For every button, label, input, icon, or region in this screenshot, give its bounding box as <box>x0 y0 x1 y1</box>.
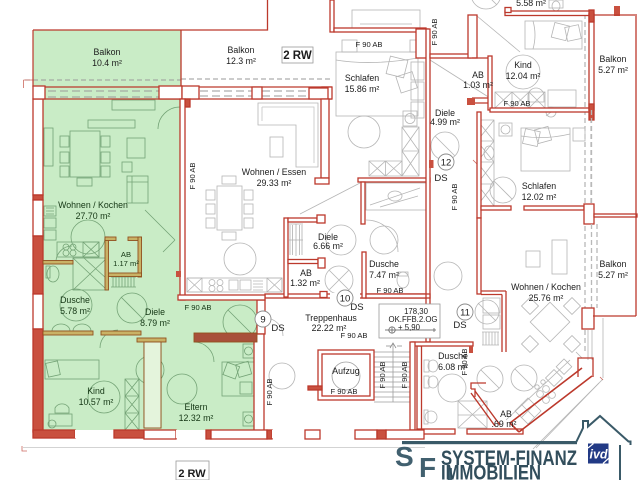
svg-text:F 90 AB: F 90 AB <box>184 303 211 312</box>
svg-text:+ 5,90: + 5,90 <box>398 323 421 332</box>
svg-text:DS: DS <box>453 320 466 331</box>
svg-text:11: 11 <box>460 308 470 319</box>
svg-text:5.27 m²: 5.27 m² <box>598 270 628 280</box>
svg-text:12.02 m²: 12.02 m² <box>522 192 557 202</box>
svg-text:ivd: ivd <box>589 448 607 462</box>
svg-text:F 90 AB: F 90 AB <box>430 18 439 45</box>
svg-text:5.78 m²: 5.78 m² <box>60 306 90 316</box>
svg-text:F 90 AB: F 90 AB <box>188 162 197 189</box>
svg-text:8.79 m²: 8.79 m² <box>140 318 170 328</box>
svg-text:F 90 AB: F 90 AB <box>265 378 274 405</box>
svg-text:DS: DS <box>271 323 284 334</box>
svg-text:2 RW: 2 RW <box>178 468 206 480</box>
svg-text:Aufzug: Aufzug <box>332 366 359 376</box>
svg-text:F 90 AB: F 90 AB <box>503 99 530 108</box>
svg-text:Diele: Diele <box>145 307 165 317</box>
svg-text:1.03 m²: 1.03 m² <box>463 80 493 90</box>
svg-text:Balkon: Balkon <box>600 54 627 64</box>
svg-text:10.4 m²: 10.4 m² <box>92 58 122 68</box>
svg-text:10: 10 <box>340 294 351 305</box>
svg-text:Eltern: Eltern <box>185 402 208 412</box>
svg-text:Balkon: Balkon <box>600 259 627 269</box>
svg-text:1.17 m²: 1.17 m² <box>113 259 139 268</box>
svg-text:Schlafen: Schlafen <box>522 181 556 191</box>
svg-text:AB: AB <box>300 268 312 278</box>
svg-text:25.76 m²: 25.76 m² <box>529 293 564 303</box>
svg-text:Wohnen / Essen: Wohnen / Essen <box>242 167 306 177</box>
svg-text:F: F <box>419 452 436 480</box>
svg-text:9: 9 <box>260 315 265 326</box>
svg-text:4.99 m²: 4.99 m² <box>430 117 460 127</box>
svg-text:12.04 m²: 12.04 m² <box>506 71 541 81</box>
svg-text:F 90 AB: F 90 AB <box>340 331 367 340</box>
svg-text:Kind: Kind <box>514 60 532 70</box>
svg-text:DS: DS <box>350 302 363 313</box>
svg-text:DS: DS <box>434 173 447 184</box>
svg-text:F 90 AB: F 90 AB <box>330 387 357 396</box>
svg-text:.69 m²: .69 m² <box>492 419 517 429</box>
svg-text:AB: AB <box>121 250 131 259</box>
svg-text:1.32 m²: 1.32 m² <box>290 278 320 288</box>
svg-text:5.27 m²: 5.27 m² <box>598 65 628 75</box>
svg-text:AB: AB <box>500 409 512 419</box>
svg-text:Balkon: Balkon <box>94 47 121 57</box>
svg-text:2 RW: 2 RW <box>283 50 312 62</box>
svg-text:Wohnen / Kochen: Wohnen / Kochen <box>511 282 581 292</box>
svg-text:F 90 AB: F 90 AB <box>378 361 387 388</box>
svg-text:AB: AB <box>472 70 484 80</box>
svg-text:7.47 m²: 7.47 m² <box>369 270 399 280</box>
svg-text:27.70 m²: 27.70 m² <box>76 211 111 221</box>
svg-text:IMMOBILIEN: IMMOBILIEN <box>441 462 541 480</box>
svg-text:6.66 m²: 6.66 m² <box>313 241 343 251</box>
svg-text:Balkon: Balkon <box>228 45 255 55</box>
svg-text:Kind: Kind <box>87 386 105 396</box>
svg-text:15.86 m²: 15.86 m² <box>345 84 380 94</box>
svg-text:10.57 m²: 10.57 m² <box>79 397 114 407</box>
svg-text:F 90 AB: F 90 AB <box>400 361 409 388</box>
svg-text:F 90 AB: F 90 AB <box>460 348 469 375</box>
svg-text:5.58 m²: 5.58 m² <box>516 0 546 8</box>
svg-text:Wohnen / Kochen: Wohnen / Kochen <box>58 200 128 210</box>
svg-text:29.33 m²: 29.33 m² <box>257 178 292 188</box>
svg-text:12.32 m²: 12.32 m² <box>179 413 214 423</box>
svg-text:12.3 m²: 12.3 m² <box>226 56 256 66</box>
svg-text:F 90 AB: F 90 AB <box>450 183 459 210</box>
svg-text:12: 12 <box>441 158 452 169</box>
svg-text:F 90 AB: F 90 AB <box>355 40 382 49</box>
svg-text:Schlafen: Schlafen <box>345 73 379 83</box>
svg-text:Dusche: Dusche <box>369 259 399 269</box>
svg-text:S: S <box>395 441 414 472</box>
svg-text:Treppenhaus: Treppenhaus <box>305 313 357 323</box>
svg-text:Dusche: Dusche <box>60 295 90 305</box>
svg-text:F 90 AB: F 90 AB <box>376 286 403 295</box>
